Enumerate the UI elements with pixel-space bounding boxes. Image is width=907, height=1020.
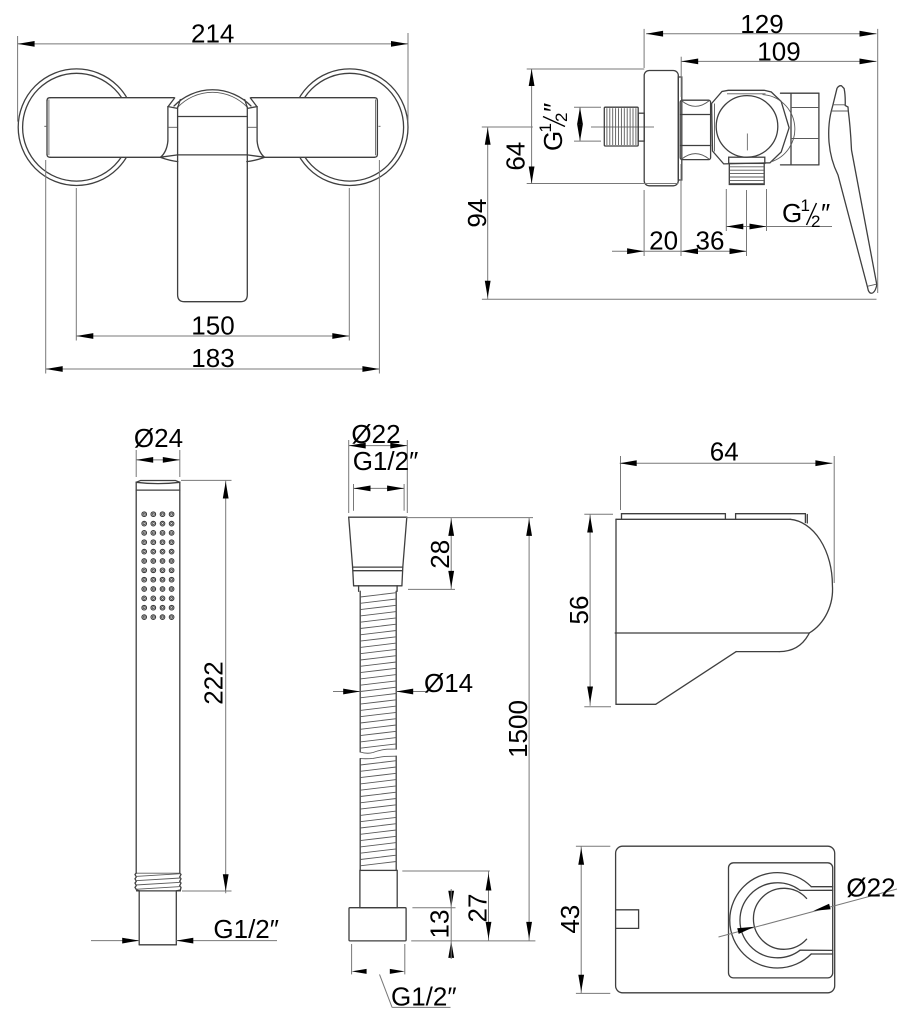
- svg-text:2: 2: [552, 113, 571, 122]
- svg-text:28: 28: [425, 540, 455, 569]
- svg-text:222: 222: [199, 661, 229, 704]
- svg-text:214: 214: [191, 19, 234, 49]
- svg-text:″: ″: [538, 103, 568, 112]
- svg-text:1500: 1500: [503, 700, 533, 758]
- svg-text:Ø22: Ø22: [846, 873, 895, 903]
- svg-text:13: 13: [425, 910, 455, 939]
- svg-text:64: 64: [501, 142, 531, 171]
- svg-text:36: 36: [696, 225, 725, 255]
- svg-text:″: ″: [821, 198, 830, 228]
- svg-text:G1/2″: G1/2″: [353, 446, 419, 476]
- svg-text:150: 150: [191, 310, 234, 340]
- svg-text:Ø14: Ø14: [424, 668, 473, 698]
- svg-text:94: 94: [462, 199, 492, 228]
- svg-text:1: 1: [536, 123, 555, 132]
- svg-text:G: G: [782, 198, 802, 228]
- svg-text:56: 56: [564, 596, 594, 625]
- svg-text:20: 20: [649, 225, 678, 255]
- svg-text:27: 27: [463, 894, 493, 923]
- svg-text:G1/2″: G1/2″: [213, 914, 279, 944]
- svg-text:109: 109: [757, 36, 800, 66]
- svg-text:Ø24: Ø24: [134, 423, 183, 453]
- svg-text:1: 1: [801, 196, 810, 215]
- svg-text:2: 2: [811, 212, 820, 231]
- svg-text:G: G: [538, 131, 568, 151]
- svg-text:G1/2″: G1/2″: [391, 982, 457, 1012]
- svg-text:64: 64: [710, 437, 739, 467]
- svg-text:43: 43: [555, 905, 585, 934]
- svg-text:183: 183: [191, 343, 234, 373]
- svg-text:Ø22: Ø22: [351, 419, 400, 449]
- svg-text:129: 129: [740, 9, 783, 39]
